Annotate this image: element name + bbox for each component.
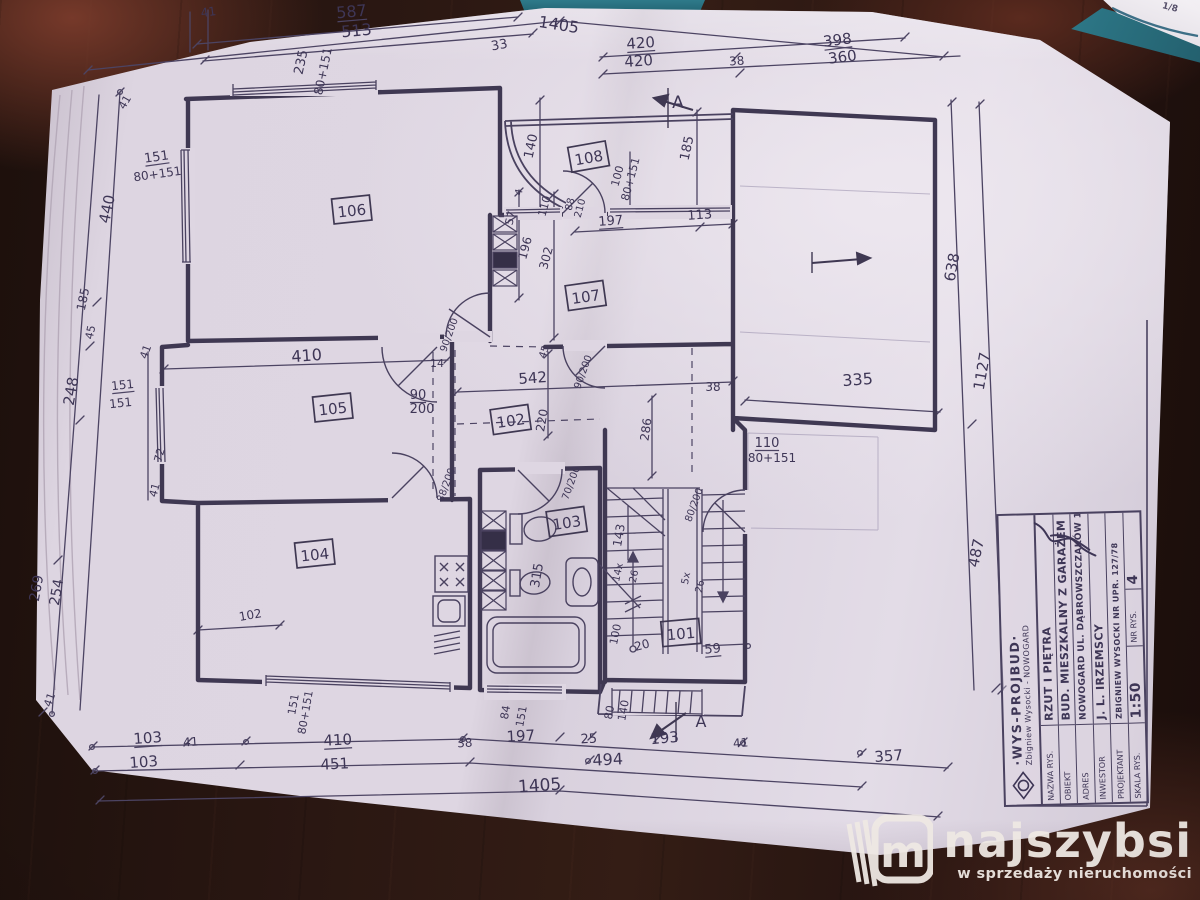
- dim-label: 196: [515, 235, 534, 261]
- dim-label: 38: [457, 736, 473, 751]
- signature: [1028, 515, 1103, 565]
- dim-label: 410: [323, 730, 353, 749]
- dim-label: 140: [522, 133, 542, 160]
- title-block: ·WYS-PROJBUD· Zbigniew Wysocki - NOWOGAR…: [996, 510, 1149, 807]
- dim-label: 151: [143, 148, 170, 166]
- dim-label: 41: [200, 4, 217, 20]
- dim-label: 420: [624, 51, 654, 71]
- field-label: OBIEKT: [1058, 724, 1077, 803]
- company-logo-icon: [1011, 770, 1036, 801]
- dim-label: 197: [506, 726, 536, 745]
- watermark: m najszybsi w sprzedaży nieruchomości: [845, 810, 1192, 890]
- washbasin: [566, 558, 598, 606]
- room-tag: 104: [295, 539, 335, 568]
- dim-label: 335: [842, 369, 874, 390]
- watermark-brand: najszybsi: [943, 818, 1192, 864]
- room-tag: 103: [546, 507, 587, 537]
- dim-label: 542: [518, 368, 548, 388]
- photo-of-floor-plan: 4158751323580+15133140542042038398360A63…: [0, 0, 1200, 900]
- dim-label: 102: [238, 606, 263, 624]
- bidet-base: [510, 570, 520, 596]
- room-number: 106: [337, 201, 367, 222]
- dim-label: 103: [133, 728, 163, 748]
- dim-label: 200: [410, 402, 435, 417]
- dim-label: 143: [610, 523, 628, 548]
- room-tag: 101: [661, 618, 701, 646]
- dim-label: 494: [592, 749, 623, 770]
- dim-label: 151: [108, 395, 132, 411]
- room-tag: 102: [490, 405, 531, 435]
- dim-label: 1405: [537, 12, 580, 37]
- room-tag: 105: [313, 393, 353, 422]
- room-tag: 108: [568, 141, 610, 172]
- dim-label: 90/200: [572, 354, 594, 391]
- room-number: 102: [495, 410, 526, 432]
- dim-label: A: [696, 712, 707, 731]
- dim-label: 84: [498, 704, 513, 720]
- dim-label: 638: [941, 251, 964, 282]
- field-label: PROJEKTANT: [1111, 723, 1130, 802]
- dim-label: 1405: [517, 775, 562, 798]
- room-tag: 107: [565, 281, 606, 311]
- dim-label: 26: [694, 579, 707, 594]
- dim-label: 151: [513, 705, 529, 728]
- dim-label: 360: [827, 46, 858, 67]
- room-number: 108: [573, 147, 604, 170]
- dim-label: 513: [340, 20, 372, 42]
- dim-label: 420: [626, 33, 656, 53]
- dim-label: 140: [615, 699, 631, 722]
- room-number: 104: [300, 545, 330, 566]
- dim-label: 357: [874, 746, 904, 766]
- dim-label: 4: [513, 188, 525, 197]
- dim-label: 440: [95, 193, 119, 225]
- dim-label: 100: [607, 623, 624, 646]
- field-label: NR RYS.: [1125, 588, 1143, 646]
- room-number: 107: [570, 286, 601, 308]
- dim-label: 41: [183, 734, 199, 749]
- dim-label: 38: [729, 53, 745, 68]
- dim-label: 410: [291, 345, 323, 366]
- watermark-logo-icon: m: [845, 810, 933, 890]
- dim-label: 41: [732, 735, 748, 750]
- dim-label: A: [672, 93, 684, 113]
- washbasin-bowl: [573, 568, 591, 596]
- dim-label: 59: [704, 641, 722, 657]
- dim-label: 14: [430, 357, 444, 370]
- field-label: INWESTOR: [1093, 723, 1112, 802]
- dim-label: 185: [74, 287, 92, 312]
- dim-label: 103: [129, 752, 159, 772]
- bathtub-inner: [493, 623, 579, 667]
- section-markers: [651, 88, 870, 742]
- dim-label: 151: [110, 377, 134, 393]
- dim-label: 235: [292, 49, 312, 76]
- dim-label: 302: [536, 245, 555, 271]
- dim-label: 20: [633, 636, 651, 653]
- dim-label: 451: [320, 754, 350, 773]
- dim-label: 110: [755, 436, 780, 451]
- field-label: SKALA RYS.: [1128, 722, 1147, 801]
- stove: [435, 556, 468, 592]
- dim-label: 185: [678, 135, 698, 162]
- dim-label: 26: [628, 569, 641, 584]
- dim-label: 269: [27, 574, 47, 603]
- room-number: 101: [666, 624, 696, 644]
- bathtub: [487, 617, 585, 673]
- room-number: 103: [551, 512, 582, 534]
- dim-label: 14x: [611, 562, 626, 583]
- dim-label: 25: [580, 732, 597, 748]
- field-label: NAZWA RYS.: [1041, 725, 1060, 804]
- dim-label: 193: [650, 728, 680, 748]
- dim-label: 45: [83, 324, 99, 340]
- kitchen-fixtures: [433, 556, 468, 654]
- dim-label: 113: [687, 207, 713, 224]
- room-number: 105: [318, 399, 348, 420]
- dim-label: 315: [528, 562, 547, 589]
- field-value: 1:50: [1126, 646, 1144, 722]
- door-arcs: [382, 171, 745, 532]
- roof-lines: [740, 186, 930, 530]
- dim-label: 80+151: [748, 451, 796, 465]
- drying-rack: [434, 631, 460, 654]
- field-value: 4: [1123, 512, 1141, 588]
- watermark-tagline: w sprzedaży nieruchomości: [943, 866, 1192, 882]
- dim-label: 38: [705, 380, 720, 394]
- dim-label: 41: [41, 691, 58, 709]
- watermark-logo-letter: m: [880, 827, 926, 878]
- dim-label: 33: [490, 37, 509, 55]
- dim-label: 41: [137, 343, 154, 361]
- dim-label: 5x: [680, 571, 693, 585]
- dim-label: 248: [60, 375, 83, 406]
- toilet-tank: [510, 514, 522, 544]
- dim-label: 90: [410, 388, 427, 403]
- room-tag: 106: [332, 195, 372, 224]
- dim-label: 254: [47, 578, 67, 607]
- dim-label: 80+151: [133, 164, 183, 185]
- field-label: ADRES: [1076, 724, 1095, 803]
